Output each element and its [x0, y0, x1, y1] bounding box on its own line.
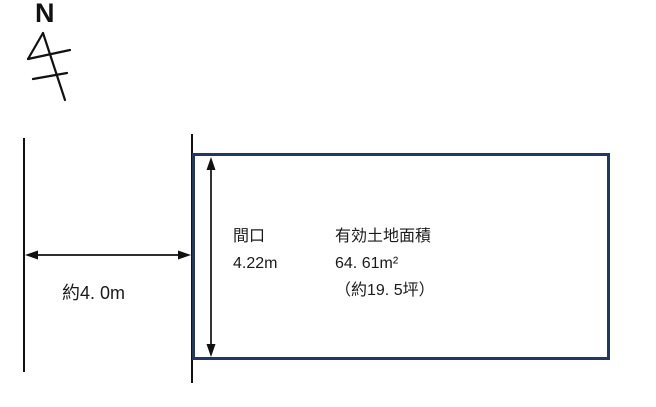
frontage-block: 間口 4.22m [233, 223, 277, 277]
road-width-arrow-icon [24, 247, 192, 263]
road-width-label: 約4. 0m [62, 279, 125, 305]
north-arrow-icon [22, 26, 74, 106]
frontage-value: 4.22m [233, 250, 277, 277]
site-plan-diagram: N 約4. 0m 間口 4.22m 有効土地面積 64. 61m² （約19. … [0, 0, 656, 407]
area-tsubo: （約19. 5坪） [335, 277, 435, 304]
area-sqm: 64. 61m² [335, 250, 435, 277]
frontage-arrow-icon [203, 156, 219, 358]
north-label: N [35, 0, 55, 27]
area-title: 有効土地面積 [335, 223, 435, 250]
frontage-label: 間口 [233, 223, 277, 250]
area-block: 有効土地面積 64. 61m² （約19. 5坪） [335, 223, 435, 304]
